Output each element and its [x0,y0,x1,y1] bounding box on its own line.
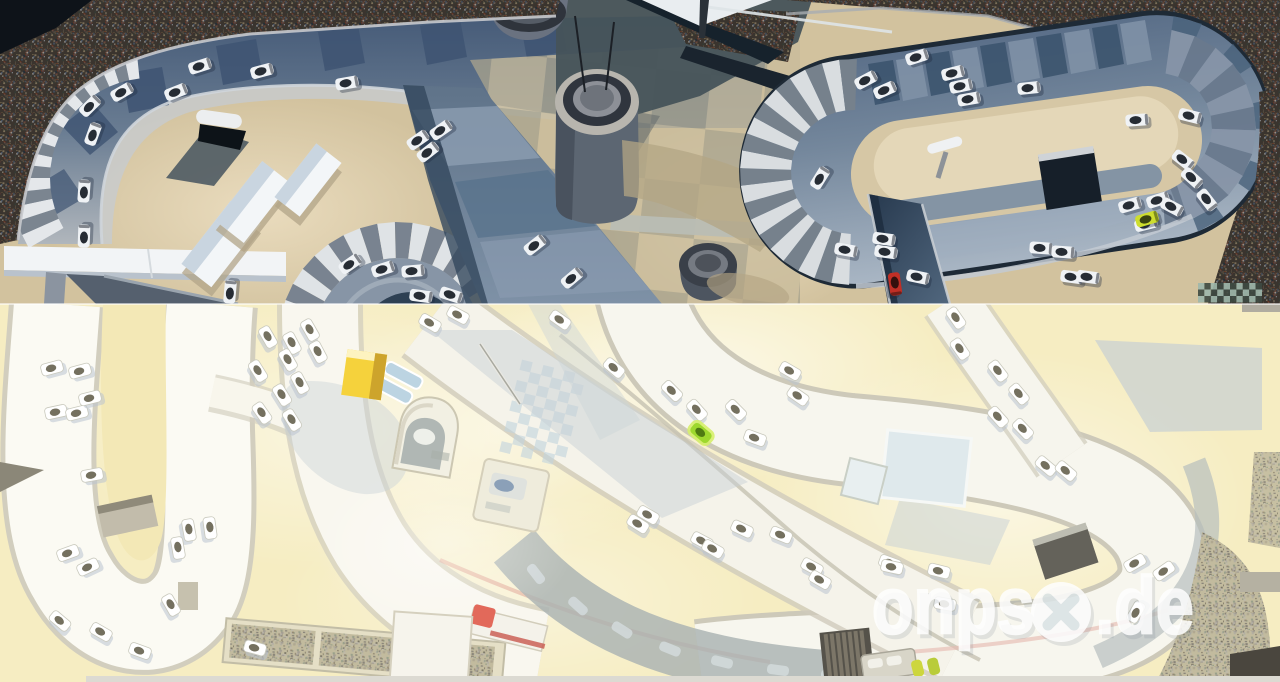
svg-text:.de: .de [1095,559,1193,650]
svg-text:onps: onps [872,559,1035,650]
